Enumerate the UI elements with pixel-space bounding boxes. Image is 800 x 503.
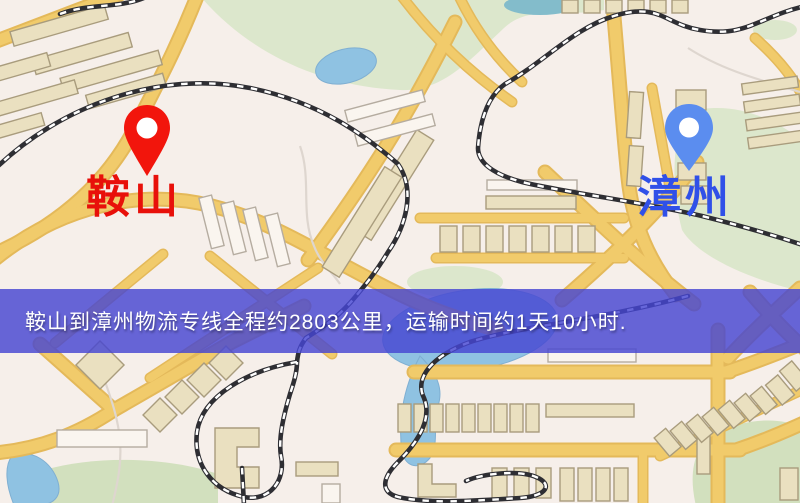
origin-label: 鞍山 <box>86 176 182 220</box>
map-background <box>0 0 800 503</box>
map-pin-icon <box>662 102 716 173</box>
origin-marker <box>121 103 173 178</box>
destination-label: 漳州 <box>637 176 733 220</box>
route-banner-text: 鞍山到漳州物流专线全程约2803公里，运输时间约1天10小时. <box>25 306 627 336</box>
map-view: 鞍山到漳州物流专线全程约2803公里，运输时间约1天10小时. 鞍山 漳州 <box>0 0 800 503</box>
destination-marker <box>662 102 716 173</box>
route-banner: 鞍山到漳州物流专线全程约2803公里，运输时间约1天10小时. <box>0 289 800 353</box>
map-pin-icon <box>121 103 173 178</box>
